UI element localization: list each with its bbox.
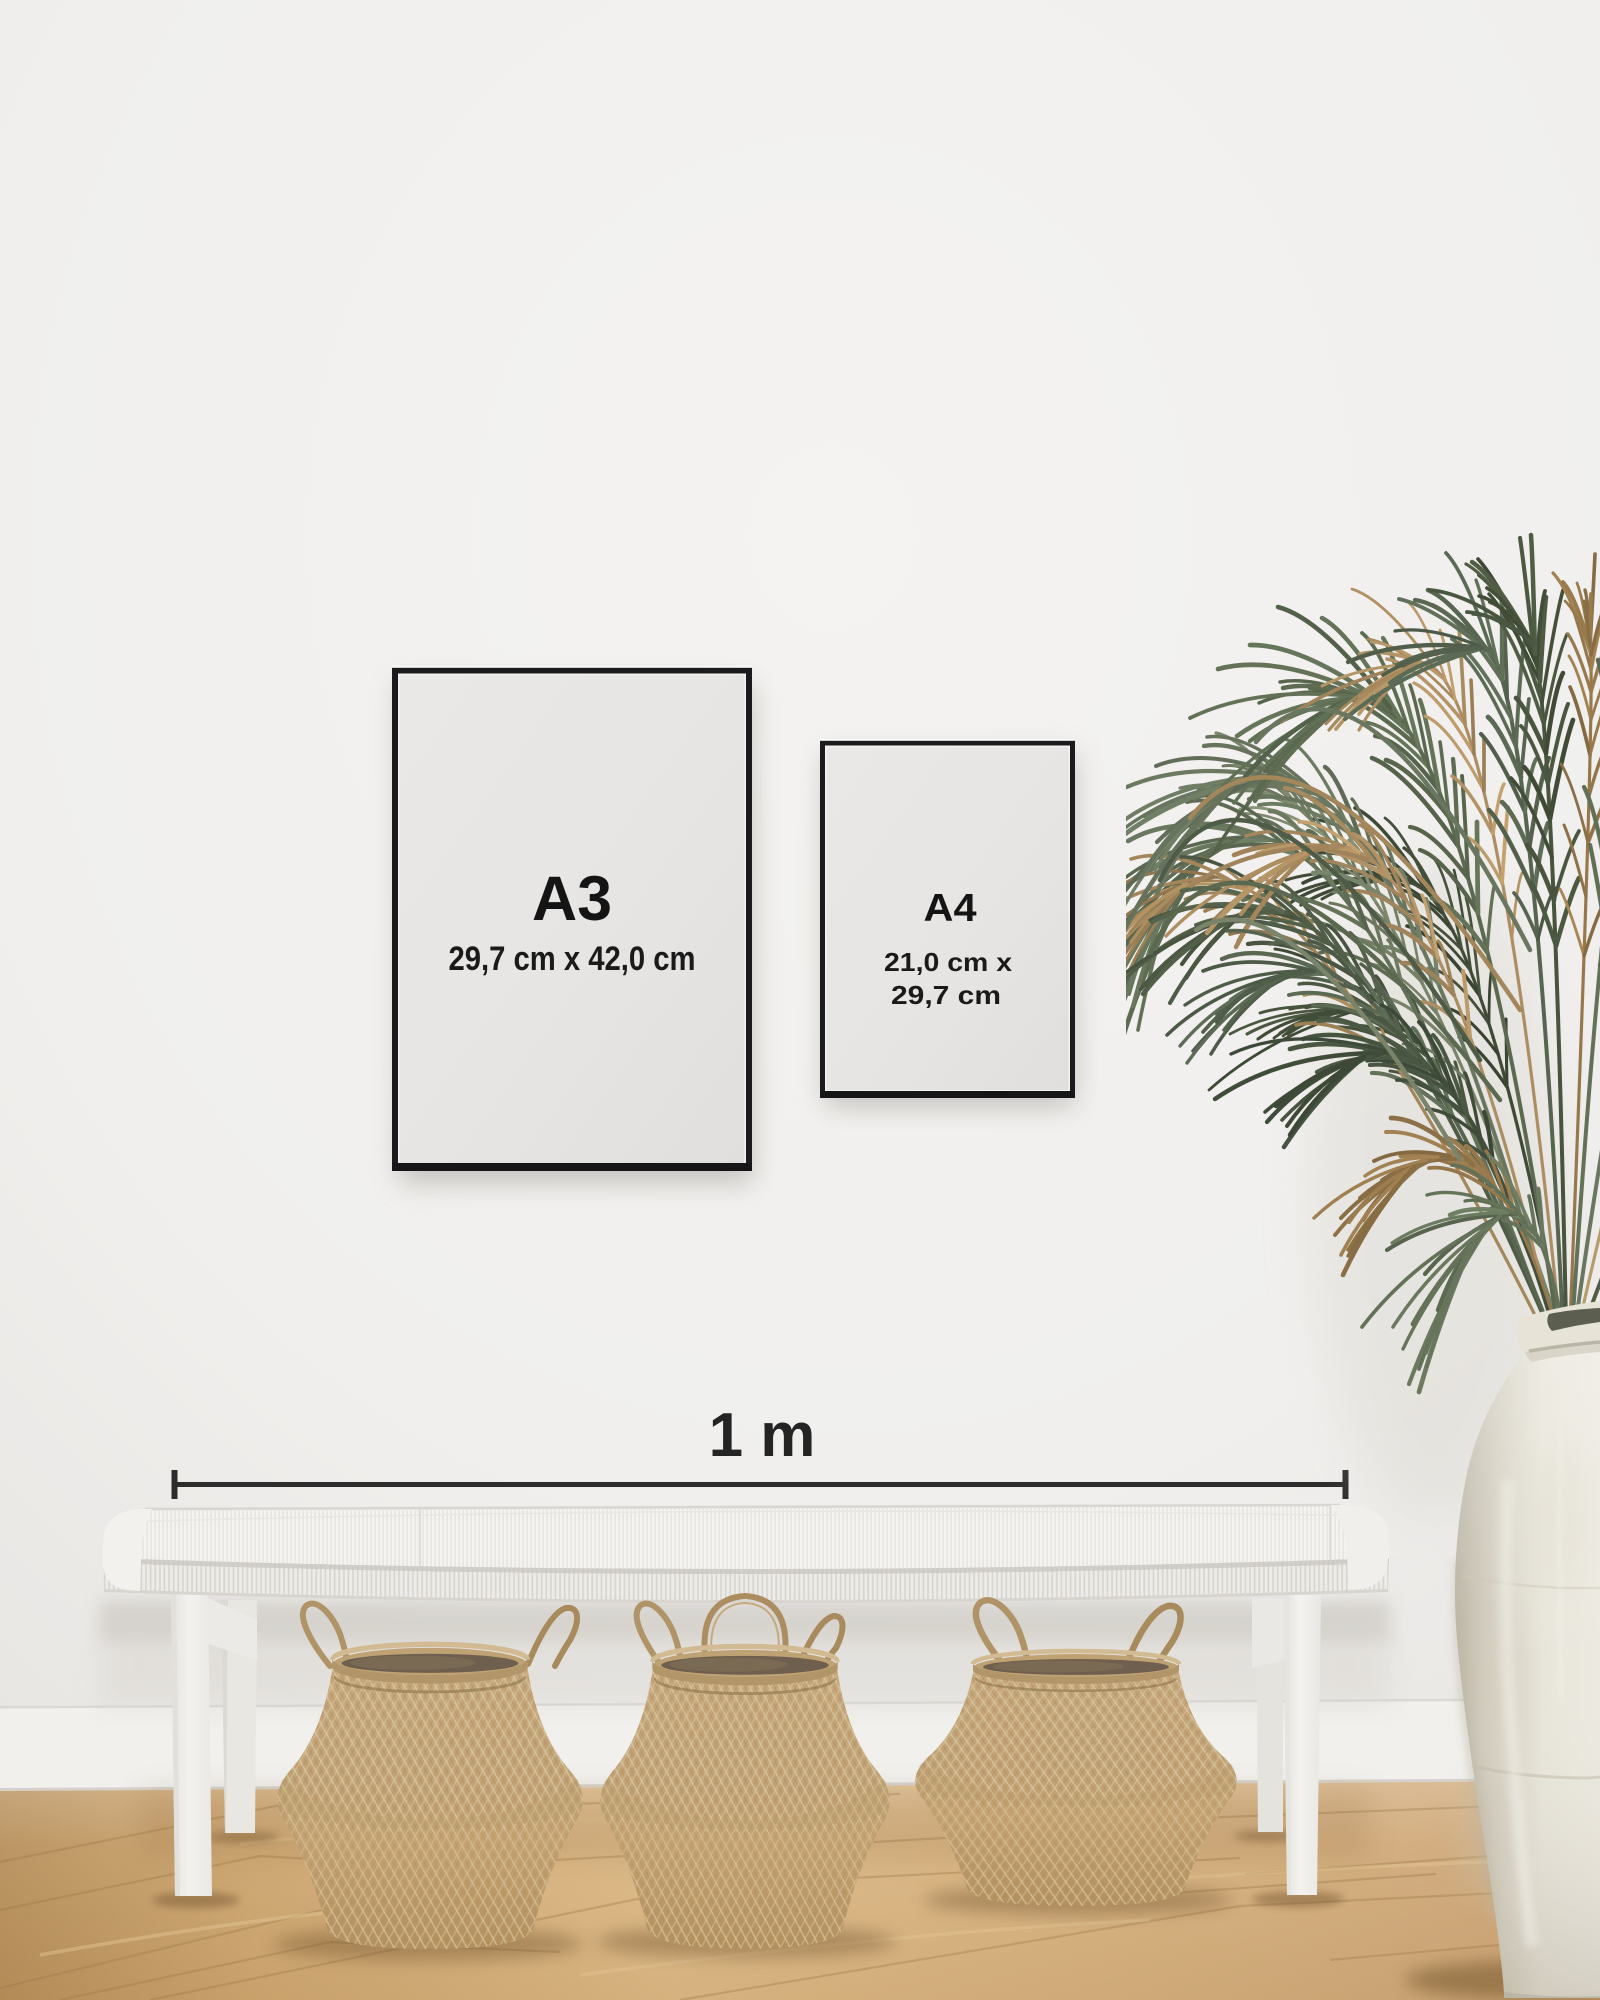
svg-text:A4: A4	[924, 887, 977, 930]
svg-text:1 m: 1 m	[709, 1401, 816, 1470]
svg-text:29,7 cm: 29,7 cm	[891, 980, 1001, 1010]
svg-text:29,7 cm x 42,0 cm: 29,7 cm x 42,0 cm	[449, 940, 696, 978]
svg-text:A3: A3	[532, 864, 612, 934]
svg-text:21,0 cm x: 21,0 cm x	[884, 947, 1013, 977]
